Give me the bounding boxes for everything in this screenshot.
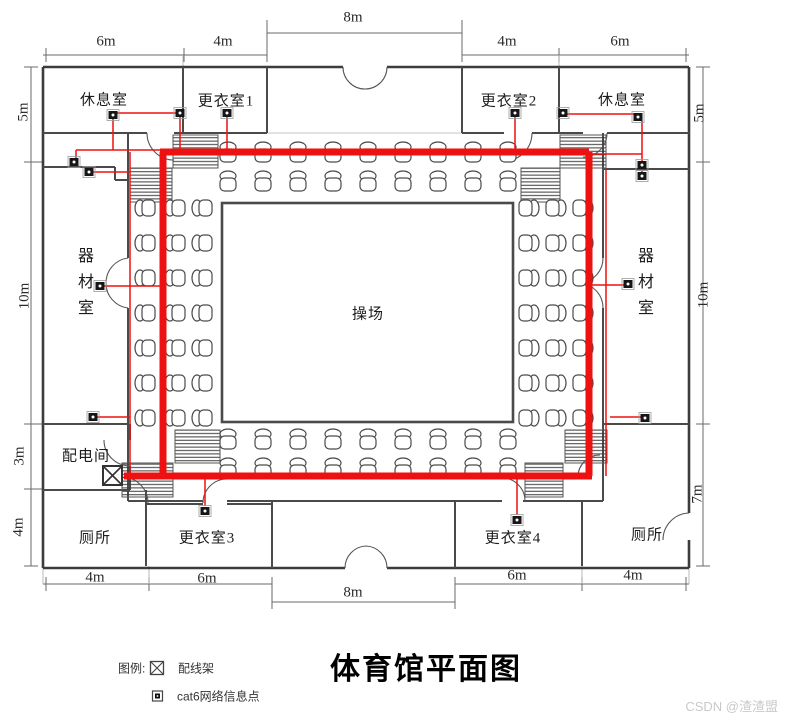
cat6-info-point-icon: [83, 167, 95, 178]
cat6-info-point-icon: [622, 279, 634, 290]
cat6-info-point-icon: [199, 506, 211, 517]
cat6-info-point-icon: [68, 157, 80, 168]
room-label-rest-room-top-right: 休息室: [598, 89, 646, 110]
room-label-rest-room-top-left: 休息室: [80, 89, 128, 110]
cat6-info-point-icon: [636, 171, 648, 182]
legend-patch-panel-icon: [151, 662, 164, 675]
room-label-equipment-room-left: 器材室: [76, 244, 96, 322]
dim-bottom-left-6m: 6m: [197, 571, 216, 588]
dim-top-right-6m: 6m: [610, 34, 629, 51]
dim-bottom-right-6m: 6m: [507, 568, 526, 585]
dim-left-4m: 4m: [11, 517, 28, 536]
legend-cat6-point-icon: [153, 691, 163, 701]
room-label-changing-room-2: 更衣室2: [481, 90, 538, 111]
cat6-info-point-icon: [511, 515, 523, 526]
dim-right-7m: 7m: [690, 484, 707, 503]
cat6-info-point-icon: [557, 108, 569, 119]
cat6-info-point-icon: [107, 110, 119, 121]
cat6-info-point-icon: [636, 160, 648, 171]
dim-top-right-4m: 4m: [497, 34, 516, 51]
legend-patch-panel-label: 配线架: [178, 660, 214, 677]
patch-panel-symbol: [103, 466, 122, 485]
room-label-toilet-left: 厕所: [79, 527, 111, 548]
dim-left-5m: 5m: [16, 102, 33, 121]
dim-bottom-right-4m: 4m: [623, 568, 642, 585]
room-label-toilet-right: 厕所: [631, 524, 663, 545]
room-label-equipment-room-right: 器材室: [636, 244, 656, 322]
page-title: 体育馆平面图: [330, 644, 522, 688]
gym-floor-plan-page: 休息室 更衣室1 更衣室2 休息室 器材室 器材室 操场 配电间 厕所 更衣室3…: [0, 0, 789, 721]
cat6-info-point-icon: [639, 413, 651, 424]
dim-bottom-8m: 8m: [343, 585, 362, 602]
dim-right-5m: 5m: [692, 103, 709, 122]
room-label-changing-room-3: 更衣室3: [179, 527, 236, 548]
legend-heading: 图例:: [118, 660, 145, 677]
room-label-changing-room-4: 更衣室4: [485, 527, 542, 548]
dim-bottom-left-4m: 4m: [85, 570, 104, 587]
room-label-changing-room-1: 更衣室1: [198, 90, 255, 111]
room-label-playground: 操场: [352, 303, 384, 324]
legend-cat6-label: cat6网络信息点: [177, 688, 260, 705]
watermark: CSDN @渣渣盟: [685, 696, 778, 715]
cat6-info-point-icon: [174, 108, 186, 119]
main-entrance-door-bottom: [345, 546, 387, 568]
equipment-room-left-door: [106, 258, 128, 308]
dim-left-10m: 10m: [17, 283, 34, 310]
main-entrance-door-top: [343, 67, 387, 89]
cat6-info-point-icon: [632, 112, 644, 123]
room-label-power-room: 配电间: [62, 445, 110, 466]
dim-top-8m: 8m: [343, 10, 362, 27]
dim-top-left-6m: 6m: [96, 34, 115, 51]
cat6-info-point-icon: [87, 412, 99, 423]
dim-top-left-4m: 4m: [213, 34, 232, 51]
dim-right-10m: 10m: [696, 282, 713, 309]
dim-left-3m: 3m: [12, 446, 29, 465]
